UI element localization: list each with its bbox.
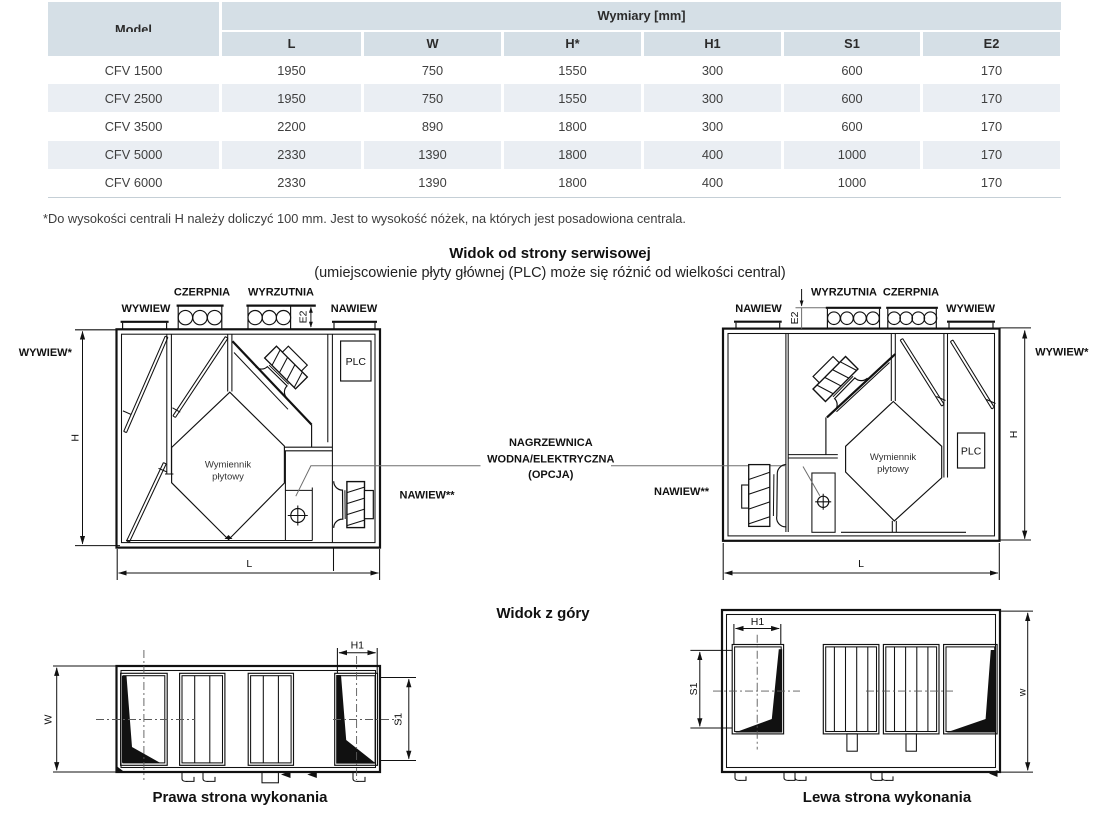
svg-text:H: H <box>1008 431 1020 439</box>
svg-text:NAGRZEWNICA: NAGRZEWNICA <box>509 437 593 449</box>
svg-text:NAWIEW: NAWIEW <box>331 303 378 315</box>
svg-text:płytowy: płytowy <box>212 472 244 483</box>
svg-text:WYRZUTNIA: WYRZUTNIA <box>811 287 877 299</box>
svg-text:S1: S1 <box>688 682 700 695</box>
svg-text:H1: H1 <box>351 640 365 652</box>
svg-text:WYRZUTNIA: WYRZUTNIA <box>248 287 314 299</box>
svg-text:WODNA/ELEKTRYCZNA: WODNA/ELEKTRYCZNA <box>487 454 614 466</box>
svg-text:PLC: PLC <box>346 356 367 368</box>
svg-text:E2: E2 <box>297 310 309 323</box>
svg-text:PLC: PLC <box>961 446 982 458</box>
svg-text:płytowy: płytowy <box>877 464 909 475</box>
svg-text:WYWIEW*: WYWIEW* <box>19 347 73 359</box>
svg-text:Wymiennik: Wymiennik <box>205 460 252 471</box>
svg-text:S1: S1 <box>392 713 404 726</box>
svg-text:NAWIEW**: NAWIEW** <box>654 486 710 498</box>
svg-text:H1: H1 <box>751 616 765 628</box>
svg-text:L: L <box>858 558 864 570</box>
svg-text:E2: E2 <box>789 311 801 324</box>
svg-text:W: W <box>43 714 55 724</box>
svg-text:L: L <box>246 558 252 570</box>
svg-text:WYWIEW: WYWIEW <box>946 303 995 315</box>
svg-text:NAWIEW**: NAWIEW** <box>400 490 456 502</box>
svg-text:CZERPNIA: CZERPNIA <box>883 287 939 299</box>
svg-text:NAWIEW: NAWIEW <box>735 303 782 315</box>
svg-text:WYWIEW*: WYWIEW* <box>1035 347 1089 359</box>
svg-text:CZERPNIA: CZERPNIA <box>174 287 230 299</box>
svg-text:w: w <box>1016 688 1028 697</box>
svg-text:H: H <box>69 434 81 442</box>
svg-text:(OPCJA): (OPCJA) <box>528 469 574 481</box>
svg-text:WYWIEW: WYWIEW <box>122 303 171 315</box>
svg-text:Wymiennik: Wymiennik <box>870 452 917 463</box>
